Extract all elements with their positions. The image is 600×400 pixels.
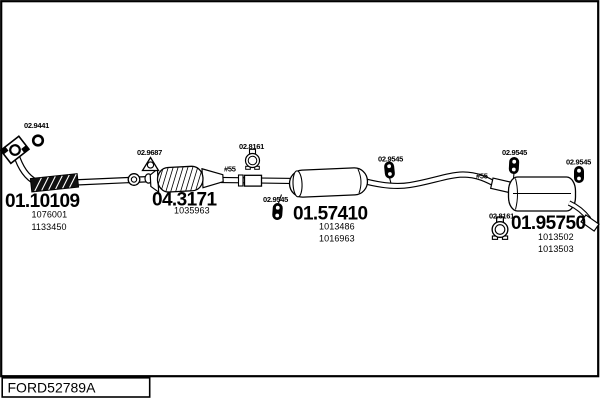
fitting-label-hanger-centre: 02.9545 bbox=[378, 155, 403, 164]
fitting-label-hanger-rear-right: 02.9545 bbox=[566, 158, 591, 167]
rubber-hanger-icon-rear-left bbox=[509, 157, 520, 175]
rubber-hanger-icon-rear-right bbox=[574, 166, 584, 183]
rear-silencer bbox=[509, 177, 576, 211]
fitting-label-hanger-front: 02.9545 bbox=[263, 195, 288, 204]
fitting-label-hanger-rear-left: 02.9545 bbox=[502, 148, 527, 157]
exhaust-system-diagram: 02.9441 02.9687 02.8161 #55 02.9545 02.9… bbox=[0, 0, 600, 400]
fitting-label-bracket-gasket: 02.9687 bbox=[137, 148, 162, 157]
joint-plate bbox=[239, 175, 244, 186]
oe-ref: 1133450 bbox=[32, 222, 67, 232]
oe-ref: 1013503 bbox=[538, 244, 574, 254]
pipe-collar-hole bbox=[131, 177, 136, 182]
joint-label-front: #55 bbox=[224, 165, 236, 174]
oe-ref: 1016963 bbox=[319, 234, 355, 244]
rubber-hanger-icon-front bbox=[272, 203, 283, 221]
joint-sleeve-front bbox=[245, 175, 262, 186]
fitting-label-gasket-ring: 02.9441 bbox=[24, 121, 49, 130]
joint-label-rear: #55 bbox=[476, 172, 488, 181]
centre-silencer bbox=[289, 167, 368, 197]
fitting-label-clamp-front: 02.8161 bbox=[239, 142, 264, 151]
oe-ref: 1013486 bbox=[319, 222, 355, 232]
oe-ref: 1076001 bbox=[32, 210, 68, 220]
part-number-rear-silencer: 01.95750 bbox=[511, 213, 585, 234]
diagram-code: FORD52789A bbox=[8, 380, 97, 396]
catalog-diagram-page: 02.9441 02.9687 02.8161 #55 02.9545 02.9… bbox=[0, 0, 600, 400]
oe-ref: 1013502 bbox=[538, 232, 574, 242]
oe-ref: 1035963 bbox=[174, 206, 210, 216]
